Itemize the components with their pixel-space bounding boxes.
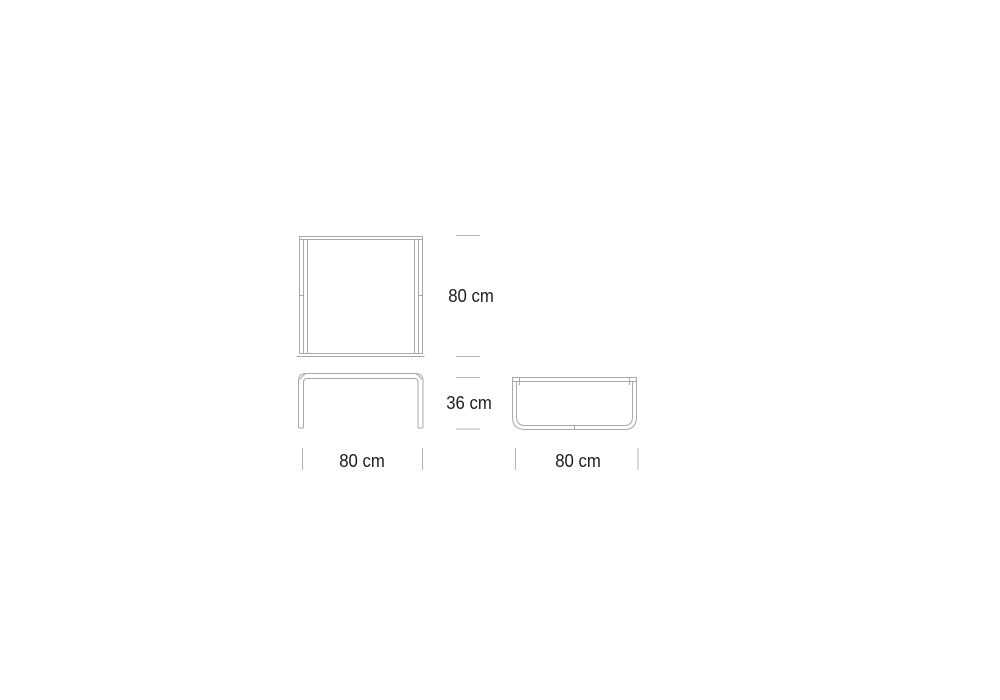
side-view-drawing: [512, 378, 637, 430]
front-view-drawing: [299, 374, 424, 429]
furniture-dimension-diagram: [0, 0, 1000, 700]
top-view-drawing: [297, 237, 425, 357]
dimension-label-top-depth: 80 cm: [429, 285, 513, 307]
dimension-label-height: 36 cm: [427, 392, 511, 414]
dimension-ticks: [303, 236, 639, 471]
dimension-label-side-width: 80 cm: [536, 450, 620, 472]
technical-drawing-page: 80 cm 36 cm 80 cm 80 cm: [0, 0, 1000, 700]
dimension-label-front-width: 80 cm: [320, 450, 404, 472]
